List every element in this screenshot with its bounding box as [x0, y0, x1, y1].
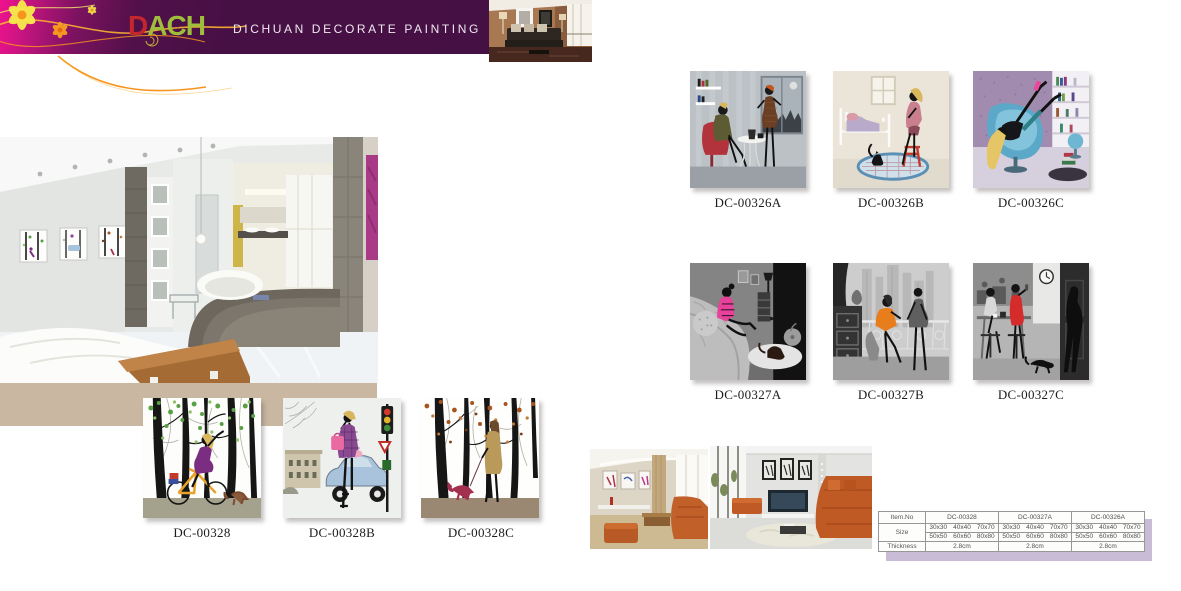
product-code: DC-00326B — [833, 196, 949, 210]
product-art-dc-00326b — [833, 71, 949, 188]
spec-item-no-value: DC-00327A — [999, 512, 1072, 524]
spec-size-values: 30x3040x4070x70 — [999, 524, 1072, 533]
product-card: DC-00328C — [421, 398, 541, 540]
room-scene-photo-left — [590, 449, 708, 549]
spec-thickness-value: 2.8cm — [999, 542, 1072, 552]
product-card: DC-00327A — [690, 263, 806, 402]
brand-tagline: DICHUAN DECORATE PAINTING — [233, 22, 481, 36]
flower-icon: ✿ — [171, 19, 180, 30]
product-card: DC-00326A — [690, 71, 806, 210]
spec-size-values: 50x5060x6080x80 — [926, 533, 999, 542]
product-art-dc-00327c — [973, 263, 1089, 380]
product-art-dc-00328b — [283, 398, 401, 518]
spec-size-values: 50x5060x6080x80 — [1072, 533, 1145, 542]
product-code: DC-00327C — [973, 388, 1089, 402]
spec-size-values: 30x3040x4070x70 — [926, 524, 999, 533]
product-art-dc-00326c — [973, 71, 1089, 188]
product-card: DC-00327B — [833, 263, 949, 402]
spec-item-no-label: Item.No — [879, 512, 926, 524]
product-code: DC-00328C — [421, 526, 541, 540]
interior-room-image — [0, 137, 378, 383]
product-art-dc-00328 — [143, 398, 261, 518]
product-card: DC-00328 — [143, 398, 261, 540]
product-art-dc-00327b — [833, 263, 949, 380]
logo-letter-c: C✿ — [166, 11, 185, 41]
product-code: DC-00327A — [690, 388, 806, 402]
logo-letter-d: D — [128, 10, 147, 41]
product-code: DC-00326C — [973, 196, 1089, 210]
product-art-dc-00327a — [690, 263, 806, 380]
logo-letter-h: H — [186, 10, 205, 41]
product-code: DC-00326A — [690, 196, 806, 210]
product-code: DC-00327B — [833, 388, 949, 402]
header-room-photo — [489, 0, 592, 62]
product-code: DC-00328B — [283, 526, 401, 540]
logo-letter-a: A — [147, 10, 166, 41]
product-art-dc-00326a — [690, 71, 806, 188]
product-card: DC-00326B — [833, 71, 949, 210]
catalog-page: DAC✿H DICHUAN DECORATE PAINTING — [0, 0, 1181, 591]
spec-thickness-label: Thickness — [879, 542, 926, 552]
spec-item-no-value: DC-00326A — [1072, 512, 1145, 524]
spec-size-values: 50x5060x6080x80 — [999, 533, 1072, 542]
spec-thickness-value: 2.8cm — [1072, 542, 1145, 552]
spec-size-values: 30x3040x4070x70 — [1072, 524, 1145, 533]
spec-table: Item.No DC-00328 DC-00327A DC-00326A Siz… — [878, 511, 1145, 552]
brand-logo: DAC✿H — [128, 11, 205, 41]
spec-thickness-value: 2.8cm — [926, 542, 999, 552]
room-scene-photo-right — [710, 446, 872, 549]
spec-size-label: Size — [879, 524, 926, 542]
product-card: DC-00327C — [973, 263, 1089, 402]
product-card: DC-00326C — [973, 71, 1089, 210]
product-code: DC-00328 — [143, 526, 261, 540]
product-card: DC-00328B — [283, 398, 401, 540]
spec-item-no-value: DC-00328 — [926, 512, 999, 524]
product-art-dc-00328c — [421, 398, 539, 518]
